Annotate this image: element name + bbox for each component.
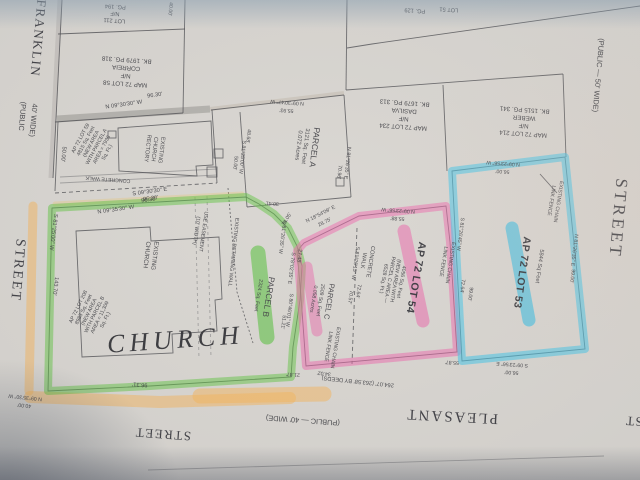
franklin-street-word: STREET [7,238,27,302]
lot234-line: N/F [398,115,409,123]
lot211-label: LOT 211 N/F PG. 194 [103,2,126,23]
parcel-a-label: PARCEL A 3121 Sq. Feet 0.072 Acres [293,125,323,168]
dim-rectory-west-dist: 50.00' [59,146,67,162]
dim-bearing: N 09°30'30" W [105,99,143,110]
church-handwritten-label: CHURCH [106,320,245,358]
dim-pink-south-dist: 55.87' [445,359,459,366]
lot234-label: MAP 72 LOT 234 N/F DASILVA BK. 1679 PG. … [377,97,429,131]
existing-church-label: EXISTING CHURCH [141,240,159,271]
use-easement-label: USE EASEMENT (10' WIDTH) [190,210,209,253]
lot51-book-fragment: PG. 129 [404,6,425,13]
dim-parcel-a-east-dist: 70.96' [335,165,342,180]
dim-blue-east-dist: 99.00' [568,269,576,284]
franklin-street-designation-2: 40' WIDE) [28,103,40,137]
dim-zig5: 21.87' [286,371,300,378]
fence-label-blue: EXISTING CHAIN LINK FENCE [545,179,564,223]
dim-franklin-top: 40.00' [166,2,173,16]
right-street-designation: (PUBLIC — 50' WIDE) [591,38,606,113]
dim-dist: 55.93' [279,107,293,114]
lot234-line: BK. 1679 PG. 313 [379,97,430,108]
dim-zig1: 30.41' [265,200,279,207]
orange-highlight-blob [200,394,324,396]
franklin-street-name: FRANKLIN [28,0,50,78]
retaining-wall-label: EXISTING RETAINING WALL [226,218,239,287]
lot53-area: 5844 Sq Feet [534,249,545,284]
pleasant-street-designation: (PUBLIC — 40' WIDE) [266,413,341,427]
dim-blue-south: 56.00' S 09°23'56" E [495,360,528,376]
block-line [58,29,185,34]
dim-dist: 96.30' [147,92,163,100]
dim-green-south-dist: 96.31' [132,380,148,387]
dim-parcel-a-west-dist2: 50.00' [231,156,238,171]
dim-zig-bearing2: S 78°02'35" E [286,252,296,285]
rectory-label: EXISTING CHURCH RECTORY [142,134,165,164]
lot58-line: BK. 1979 PG. 318 [101,54,152,65]
dim-dist: 56.00' [504,369,518,376]
block-line [443,85,447,171]
dim-dist: 55.88' [390,215,404,222]
dim-parcel-a-north: 55.93' N 09°30'47" W [269,98,304,114]
right-street-word: STREET [606,178,632,260]
franklin-street-shade [51,0,60,178]
block-line [183,0,185,113]
dim-dist: 56.00' [495,168,509,175]
lot214-line: BK. 1515 PG. 341 [499,104,550,115]
pleasant-street-word: STREET [134,425,192,444]
rectory-block-east [212,110,217,183]
pleasant-street-name: PLEASANT [405,406,498,427]
street-fragment: ST [624,413,640,429]
lot59-label: AP 72 LOT 59 4815 Sq. Feet (NEW AREA WIT… [69,119,120,171]
lot58-line: N/F [120,72,131,80]
plat-photo: FRANKLIN (PUBLIC 40' WIDE) STREET (PUBLI… [0,0,640,480]
dim-deed-frontage: 264.07' (263.58' BY DEEDS) [321,374,394,388]
block-line [563,74,566,157]
concrete-walk-label: CONCRETE WALK [85,174,131,183]
block-line [346,74,563,90]
lot211-line: PG. 194 [105,2,126,9]
lot214-label: MAP 72 LOT 214 N/F WEBER BK. 1515 PG. 34… [497,104,549,138]
dim-zig4: 51.21' [279,315,287,330]
pleasant-south-line [148,456,604,470]
diagonal-street-line [347,6,640,48]
dim-parcel-a-east-bearing: N 81°26'35" E [342,147,351,180]
survey-plat-drawing: FRANKLIN (PUBLIC 40' WIDE) STREET (PUBLI… [0,0,640,480]
dim-bearing: S 09°23'56" E [495,360,528,368]
dim-shared-dist2: 99.00' [466,287,474,302]
lot58-label: MAP 72 LOT 58 N/F CORREIA BK. 1979 PG. 3… [99,54,151,88]
lot211-line: LOT 211 [103,16,125,23]
lot211-line: N/F [110,10,120,17]
orange-highlight-franklin [29,206,33,391]
dim-deed-frontage2: 34.02' [317,369,332,376]
rectory-building-outline [118,121,213,176]
dim-pink-mid-bearing: S 81°26'15" W [350,246,361,280]
lot214-line: N/F [518,122,529,130]
dim-pink-mid-dist2: 70.57' [346,290,354,305]
lot51-fragment: LOT 51 [439,5,458,12]
dim-rectory-north: N 09°30'30" W 96.30' [104,92,163,111]
franklin-street-designation-1: (PUBLIC [17,101,29,131]
wall-shade-band [57,109,210,119]
block-line [346,0,347,90]
lot54-details: 4056 Sq. Feet (NEW AREA WITH PARCEL C AR… [376,255,408,306]
dim-zig-bearing1: S 81°26'35" W [277,220,287,254]
